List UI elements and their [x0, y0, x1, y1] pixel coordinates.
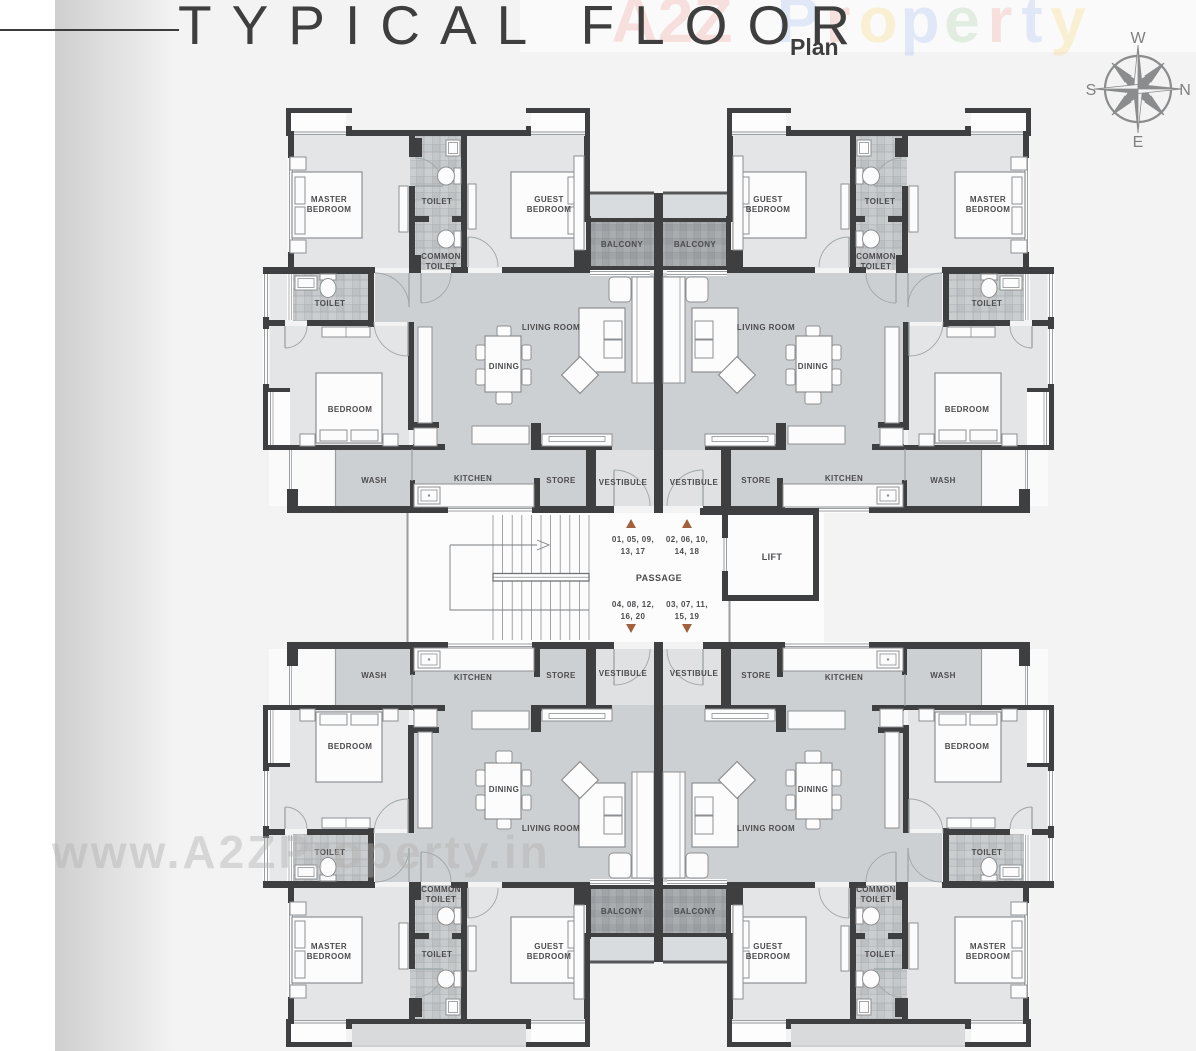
svg-text:TOILET: TOILET	[422, 950, 453, 959]
svg-text:DINING: DINING	[798, 785, 828, 794]
svg-text:TOILET: TOILET	[972, 848, 1003, 857]
svg-text:GUEST: GUEST	[753, 942, 783, 951]
svg-text:GUEST: GUEST	[534, 942, 564, 951]
svg-text:STORE: STORE	[741, 476, 771, 485]
svg-text:TOILET: TOILET	[865, 950, 896, 959]
svg-text:r: r	[988, 0, 1013, 56]
svg-text:WASH: WASH	[361, 671, 387, 680]
svg-text:BEDROOM: BEDROOM	[966, 205, 1011, 214]
svg-text:VESTIBULE: VESTIBULE	[599, 478, 648, 487]
svg-text:KITCHEN: KITCHEN	[825, 474, 863, 483]
svg-text:15, 19: 15, 19	[675, 612, 700, 621]
svg-text:BEDROOM: BEDROOM	[945, 742, 990, 751]
svg-text:p: p	[900, 0, 939, 56]
svg-text:e: e	[944, 0, 980, 56]
svg-text:LIVING ROOM: LIVING ROOM	[737, 824, 795, 833]
svg-text:BALCONY: BALCONY	[674, 907, 717, 916]
svg-text:LIVING ROOM: LIVING ROOM	[737, 323, 795, 332]
svg-text:E: E	[1133, 134, 1144, 151]
svg-text:COMMON: COMMON	[421, 885, 461, 894]
svg-text:BEDROOM: BEDROOM	[307, 205, 352, 214]
svg-text:COMMON: COMMON	[421, 252, 461, 261]
svg-text:MASTER: MASTER	[311, 942, 347, 951]
svg-text:VESTIBULE: VESTIBULE	[670, 478, 719, 487]
svg-text:BEDROOM: BEDROOM	[746, 952, 791, 961]
svg-text:t: t	[1021, 0, 1042, 56]
svg-text:DINING: DINING	[798, 362, 828, 371]
svg-text:STORE: STORE	[546, 476, 576, 485]
svg-text:TOILET: TOILET	[861, 895, 892, 904]
svg-text:TOILET: TOILET	[426, 262, 457, 271]
svg-text:DINING: DINING	[489, 785, 519, 794]
svg-text:14, 18: 14, 18	[675, 547, 700, 556]
svg-text:LIVING ROOM: LIVING ROOM	[522, 323, 580, 332]
svg-text:LIFT: LIFT	[762, 552, 783, 562]
svg-text:KITCHEN: KITCHEN	[825, 673, 863, 682]
svg-text:PASSAGE: PASSAGE	[636, 573, 682, 583]
svg-text:02, 06, 10,: 02, 06, 10,	[666, 535, 708, 544]
svg-text:STORE: STORE	[546, 671, 576, 680]
svg-text:BEDROOM: BEDROOM	[527, 952, 572, 961]
svg-text:S: S	[1086, 82, 1097, 99]
svg-text:KITCHEN: KITCHEN	[454, 673, 492, 682]
svg-text:COMMON: COMMON	[856, 885, 896, 894]
svg-text:BALCONY: BALCONY	[601, 907, 644, 916]
svg-text:BEDROOM: BEDROOM	[945, 405, 990, 414]
svg-text:BEDROOM: BEDROOM	[328, 405, 373, 414]
svg-text:TOILET: TOILET	[972, 299, 1003, 308]
svg-text:W: W	[1130, 30, 1146, 47]
svg-text:BEDROOM: BEDROOM	[746, 205, 791, 214]
svg-text:MASTER: MASTER	[970, 942, 1006, 951]
svg-text:COMMON: COMMON	[856, 252, 896, 261]
svg-text:TOILET: TOILET	[861, 262, 892, 271]
svg-text:BALCONY: BALCONY	[674, 240, 717, 249]
svg-text:BEDROOM: BEDROOM	[966, 952, 1011, 961]
svg-text:BEDROOM: BEDROOM	[527, 205, 572, 214]
svg-text:TOILET: TOILET	[865, 197, 896, 206]
svg-text:03, 07, 11,: 03, 07, 11,	[666, 600, 708, 609]
svg-text:TYPICAL FLOOR: TYPICAL FLOOR	[178, 0, 870, 56]
svg-text:MASTER: MASTER	[311, 195, 347, 204]
svg-text:VESTIBULE: VESTIBULE	[599, 669, 648, 678]
svg-text:BEDROOM: BEDROOM	[328, 742, 373, 751]
svg-text:VESTIBULE: VESTIBULE	[670, 669, 719, 678]
svg-text:y: y	[1050, 0, 1086, 56]
svg-text:TOILET: TOILET	[315, 299, 346, 308]
svg-text:DINING: DINING	[489, 362, 519, 371]
svg-text:GUEST: GUEST	[753, 195, 783, 204]
svg-text:BALCONY: BALCONY	[601, 240, 644, 249]
svg-text:TOILET: TOILET	[422, 197, 453, 206]
svg-text:MASTER: MASTER	[970, 195, 1006, 204]
svg-text:www.A2ZProperty.in: www.A2ZProperty.in	[51, 826, 551, 878]
svg-text:WASH: WASH	[930, 671, 956, 680]
svg-text:13, 17: 13, 17	[621, 547, 646, 556]
svg-text:N: N	[1179, 82, 1191, 99]
svg-text:STORE: STORE	[741, 671, 771, 680]
svg-text:04, 08, 12,: 04, 08, 12,	[612, 600, 654, 609]
svg-text:Plan: Plan	[790, 34, 839, 60]
svg-text:TOILET: TOILET	[426, 895, 457, 904]
svg-text:01, 05, 09,: 01, 05, 09,	[612, 535, 654, 544]
svg-text:BEDROOM: BEDROOM	[307, 952, 352, 961]
svg-text:KITCHEN: KITCHEN	[454, 474, 492, 483]
svg-text:16, 20: 16, 20	[621, 612, 646, 621]
svg-text:GUEST: GUEST	[534, 195, 564, 204]
svg-text:WASH: WASH	[930, 476, 956, 485]
svg-text:WASH: WASH	[361, 476, 387, 485]
